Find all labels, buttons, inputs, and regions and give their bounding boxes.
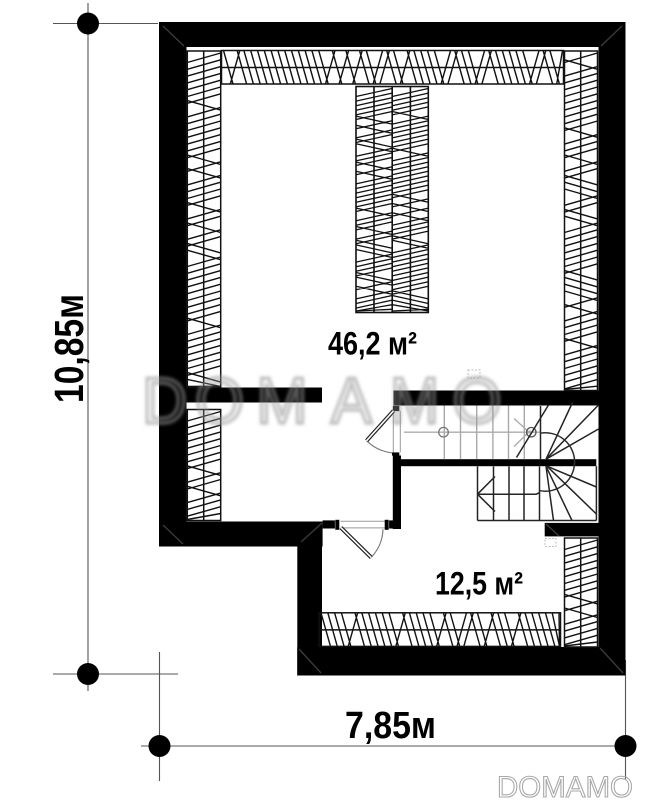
svg-text:A: A	[331, 365, 372, 437]
svg-text:46,2 м²: 46,2 м²	[328, 326, 417, 362]
svg-text:10,85м: 10,85м	[46, 294, 92, 403]
svg-text:O: O	[453, 365, 502, 437]
svg-text:12,5 м²: 12,5 м²	[435, 566, 523, 602]
svg-text:O: O	[195, 365, 244, 437]
svg-text:M: M	[390, 365, 439, 437]
svg-text:D: D	[142, 365, 187, 437]
svg-text:7,85м: 7,85м	[345, 705, 436, 747]
svg-text:M: M	[257, 365, 308, 437]
svg-text:DOMAMO: DOMAMO	[497, 771, 633, 800]
